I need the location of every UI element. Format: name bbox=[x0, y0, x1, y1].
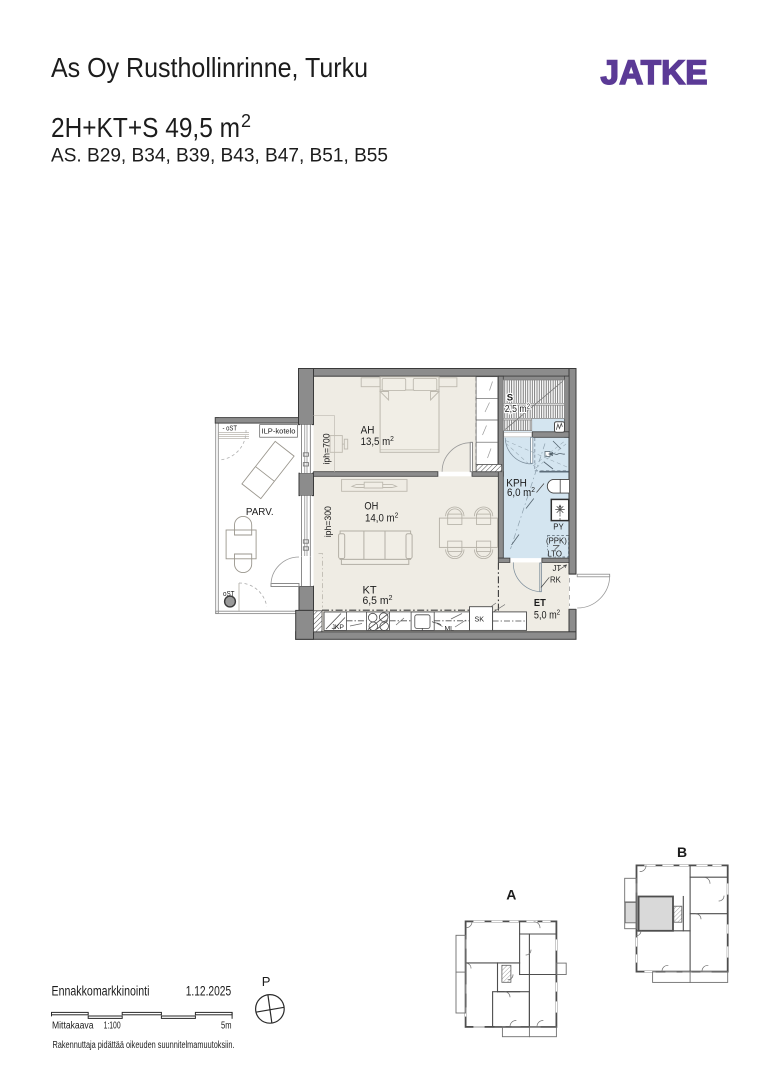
svg-text:iph=700: iph=700 bbox=[321, 433, 331, 464]
svg-text:ILP-kotelo: ILP-kotelo bbox=[262, 427, 296, 436]
svg-text:ET: ET bbox=[534, 597, 546, 609]
svg-text:S: S bbox=[507, 393, 513, 404]
svg-text:JATKE: JATKE bbox=[601, 54, 708, 92]
svg-text:As Oy Rusthollinrinne, Turku: As Oy Rusthollinrinne, Turku bbox=[51, 52, 368, 83]
svg-text:OH: OH bbox=[364, 501, 378, 513]
svg-text:Mittakaava: Mittakaava bbox=[52, 1021, 94, 1032]
svg-text:13,5 m2: 13,5 m2 bbox=[361, 434, 394, 448]
svg-text:1:100: 1:100 bbox=[104, 1021, 121, 1032]
svg-text:JKP: JKP bbox=[332, 624, 345, 631]
svg-text:5m: 5m bbox=[221, 1021, 232, 1032]
svg-text:A: A bbox=[506, 886, 516, 902]
svg-text:14,0 m2: 14,0 m2 bbox=[365, 511, 398, 525]
svg-text:2H+KT+S 49,5 m: 2H+KT+S 49,5 m bbox=[51, 112, 240, 143]
svg-text:PY: PY bbox=[553, 522, 564, 531]
svg-text:Rakennuttaja pidättää oikeuden: Rakennuttaja pidättää oikeuden suunnitel… bbox=[53, 1040, 235, 1051]
svg-text:RK: RK bbox=[550, 575, 562, 584]
svg-text:2: 2 bbox=[241, 111, 251, 131]
svg-text:ML: ML bbox=[445, 626, 455, 633]
svg-text:B: B bbox=[677, 844, 687, 860]
svg-text:2,5 m2: 2,5 m2 bbox=[505, 402, 530, 416]
svg-text:Ennakkomarkkinointi: Ennakkomarkkinointi bbox=[52, 984, 150, 999]
svg-text:6,0 m2: 6,0 m2 bbox=[507, 485, 535, 499]
svg-text:5,0 m2: 5,0 m2 bbox=[534, 608, 560, 622]
svg-text:1.12.2025: 1.12.2025 bbox=[186, 984, 232, 999]
svg-text:iph=300: iph=300 bbox=[323, 506, 333, 537]
svg-text:SK: SK bbox=[475, 615, 485, 624]
svg-text:LTO: LTO bbox=[548, 549, 562, 558]
svg-text:AS. B29, B34, B39, B43, B47, B: AS. B29, B34, B39, B43, B47, B51, B55 bbox=[51, 145, 388, 167]
svg-text:JT: JT bbox=[553, 564, 562, 573]
svg-text:- oST: - oST bbox=[223, 423, 238, 432]
svg-text:AH: AH bbox=[361, 425, 375, 437]
svg-text:6,5 m2: 6,5 m2 bbox=[363, 593, 393, 607]
svg-text:P: P bbox=[262, 974, 271, 989]
svg-text:PARV.: PARV. bbox=[246, 507, 274, 518]
svg-text:(PPK): (PPK) bbox=[546, 537, 567, 546]
